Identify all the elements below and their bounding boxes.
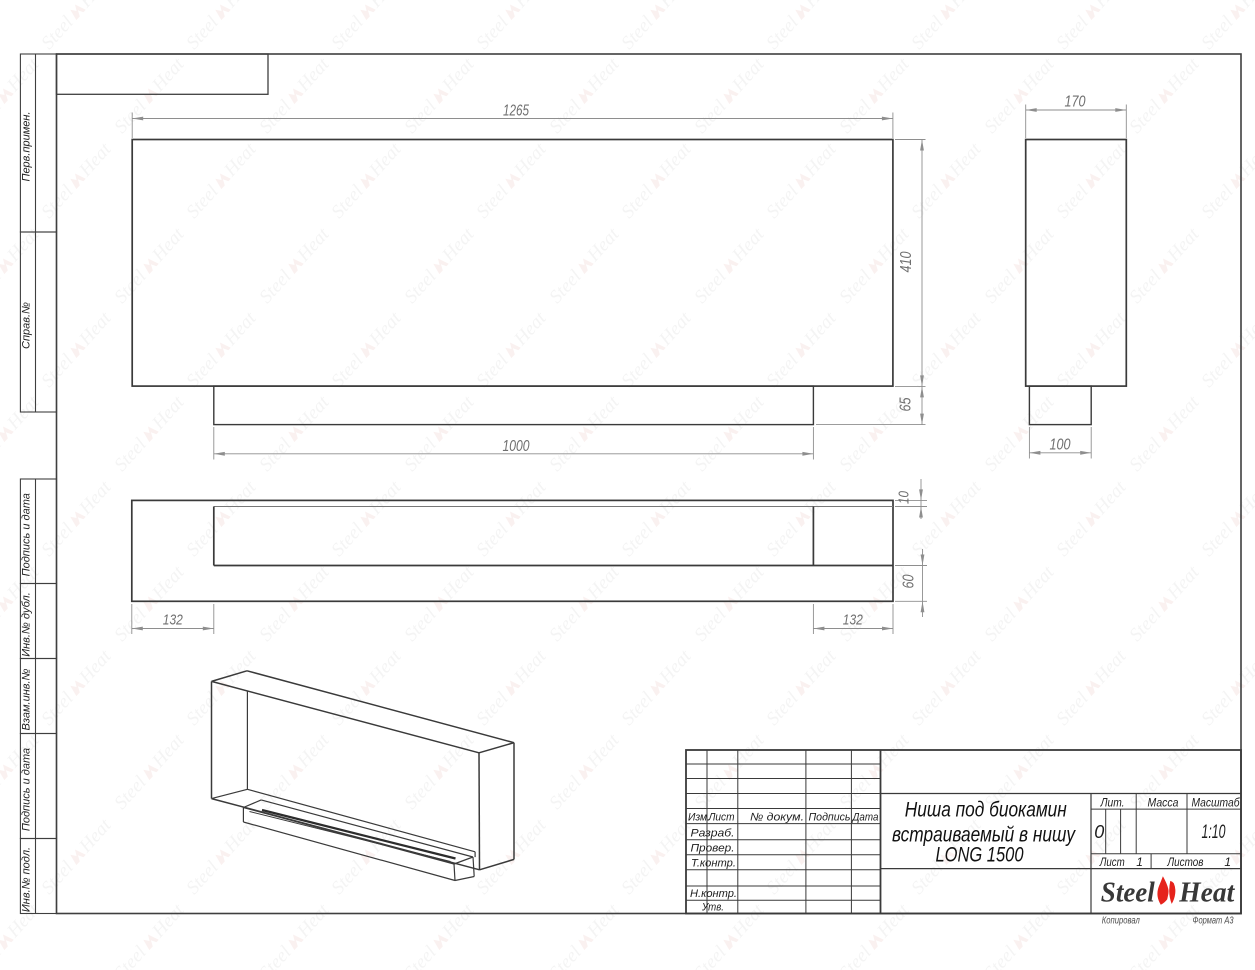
svg-text:410: 410	[898, 251, 915, 272]
svg-text:Взам.инв.№: Взам.инв.№	[21, 668, 33, 730]
svg-text:60: 60	[901, 574, 918, 588]
svg-text:0: 0	[1094, 822, 1104, 842]
svg-text:Н.контр.: Н.контр.	[690, 888, 737, 900]
svg-text:Разраб.: Разраб.	[691, 828, 735, 840]
svg-text:Перв.примен.: Перв.примен.	[21, 111, 33, 181]
svg-text:1000: 1000	[503, 438, 530, 455]
svg-text:Подпись и дата: Подпись и дата	[21, 748, 33, 831]
svg-text:Масштаб: Масштаб	[1192, 798, 1240, 810]
svg-text:Инв.№ подл.: Инв.№ подл.	[21, 847, 33, 912]
svg-text:Листов: Листов	[1167, 857, 1204, 869]
svg-text:№ докум.: № докум.	[750, 812, 804, 824]
svg-text:Утв.: Утв.	[701, 901, 724, 913]
svg-text:Лист: Лист	[708, 812, 735, 824]
svg-text:Копировал: Копировал	[1102, 916, 1140, 927]
svg-text:Провер.: Провер.	[691, 843, 735, 855]
svg-text:Heat: Heat	[1178, 877, 1235, 909]
svg-text:10: 10	[896, 490, 913, 504]
svg-text:Подпись: Подпись	[809, 812, 851, 824]
svg-text:Инв.№ дубл.: Инв.№ дубл.	[21, 592, 33, 657]
svg-text:132: 132	[843, 612, 864, 629]
svg-text:65: 65	[898, 397, 915, 411]
svg-text:1: 1	[1136, 855, 1143, 869]
svg-text:Масса: Масса	[1148, 798, 1179, 810]
svg-text:Подпись и дата: Подпись и дата	[21, 493, 33, 576]
svg-text:Steel: Steel	[1101, 877, 1156, 909]
svg-text:Дата: Дата	[851, 812, 879, 824]
svg-text:1:10: 1:10	[1202, 822, 1226, 843]
svg-text:Справ.№: Справ.№	[21, 302, 33, 349]
svg-text:Ниша под биокамин: Ниша под биокамин	[905, 799, 1067, 822]
svg-text:170: 170	[1065, 94, 1086, 111]
svg-text:Изм.: Изм.	[688, 812, 710, 824]
svg-text:Лист: Лист	[1099, 857, 1125, 869]
svg-text:132: 132	[163, 612, 184, 629]
svg-text:Т.контр.: Т.контр.	[691, 858, 736, 870]
svg-text:LONG 1500: LONG 1500	[936, 843, 1024, 866]
svg-text:1: 1	[1224, 855, 1231, 869]
svg-text:1265: 1265	[503, 103, 529, 120]
svg-text:Формат А3: Формат А3	[1193, 916, 1234, 927]
svg-text:100: 100	[1050, 436, 1071, 453]
svg-text:Лит.: Лит.	[1100, 798, 1125, 810]
